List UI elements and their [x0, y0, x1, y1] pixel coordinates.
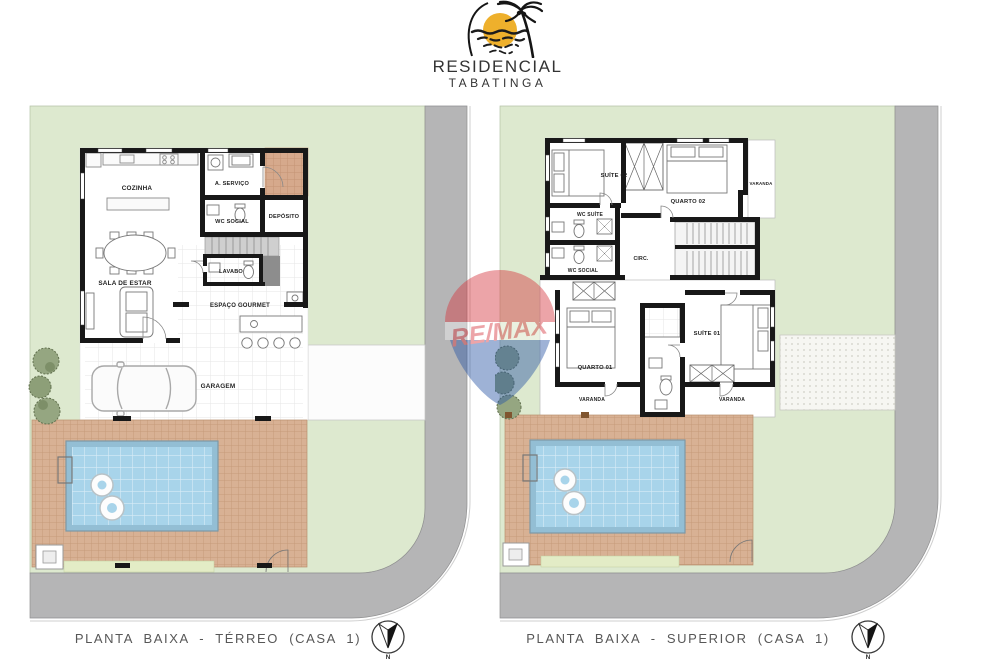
terreo-floor-plan: COZINHA A. SERVIÇO WC SOCIAL DEPÓSITO LA…: [0, 95, 500, 630]
suite01-bed: [721, 305, 771, 369]
superior-floor-plan: SUÍTE 02 QUARTO 02 VARANDA WC SUÍTE WC S…: [495, 95, 1000, 630]
swimming-pool: [58, 441, 218, 531]
label-garagem: GARAGEM: [201, 383, 236, 390]
fence-post: [505, 412, 512, 418]
label-sala: SALA DE ESTAR: [98, 280, 152, 287]
compass-north-label: N: [386, 654, 391, 661]
label-gourmet: ESPAÇO GOURMET: [210, 303, 270, 309]
label-varanda-superior: VARANDA: [749, 181, 773, 186]
entry-porch-grid: [265, 148, 308, 196]
label-deposito: DEPÓSITO: [269, 212, 300, 220]
car: [92, 362, 196, 416]
quarto01-wardrobe: [573, 282, 615, 300]
north-compass: N: [366, 617, 410, 664]
kitchen-island: [107, 198, 169, 210]
label-lavabo: LAVABO: [219, 269, 243, 275]
label-varanda-direita: VARANDA: [719, 397, 745, 403]
varanda-superior-floor: [748, 140, 775, 218]
label-wc-social: WC SOCIAL: [215, 219, 249, 225]
label-servico: A. SERVIÇO: [215, 181, 250, 187]
quarto02-bed: [667, 145, 727, 193]
label-suite01: SUÍTE 01: [694, 329, 721, 337]
logo: RESIDENCIAL TABATINGA: [400, 0, 595, 90]
compass-north-label: N: [866, 654, 871, 661]
label-circ: CIRC.: [633, 256, 648, 262]
palm-sunset-icon: [438, 0, 558, 58]
suite02-bed: [552, 150, 604, 196]
label-varanda-esquerda: VARANDA: [579, 397, 605, 403]
planter-strip: [541, 556, 679, 567]
north-compass: N: [846, 617, 890, 664]
label-wc-suite: WC SUÍTE: [577, 210, 604, 218]
label-cozinha: COZINHA: [122, 185, 153, 192]
suite01-wardrobe: [690, 365, 734, 382]
paver-path-dots: [780, 335, 895, 410]
logo-subtitle: TABATINGA: [400, 76, 595, 90]
label-wc-social: WC SOCIAL: [568, 268, 598, 274]
label-quarto01: QUARTO 01: [578, 365, 613, 371]
planter-strip: [64, 561, 214, 572]
staircase: [675, 222, 755, 278]
driveway: [308, 345, 425, 420]
quarto01-bed: [567, 308, 615, 368]
logo-title: RESIDENCIAL: [400, 58, 595, 76]
caption-terreo: PLANTA BAIXA - TÉRREO (CASA 1): [38, 631, 398, 646]
label-suite02: SUÍTE 02: [601, 171, 628, 179]
outdoor-shower-base: [503, 543, 529, 566]
outdoor-shower-base: [36, 545, 63, 569]
fence-post: [581, 412, 589, 418]
label-quarto02: QUARTO 02: [671, 199, 706, 205]
floor-plan-sheet: RESIDENCIAL TABATINGA: [0, 0, 1000, 667]
suite02-wardrobe: [625, 143, 663, 190]
swimming-pool: [523, 440, 685, 533]
caption-superior: PLANTA BAIXA - SUPERIOR (CASA 1): [498, 631, 858, 646]
tv-rack: [86, 293, 94, 329]
